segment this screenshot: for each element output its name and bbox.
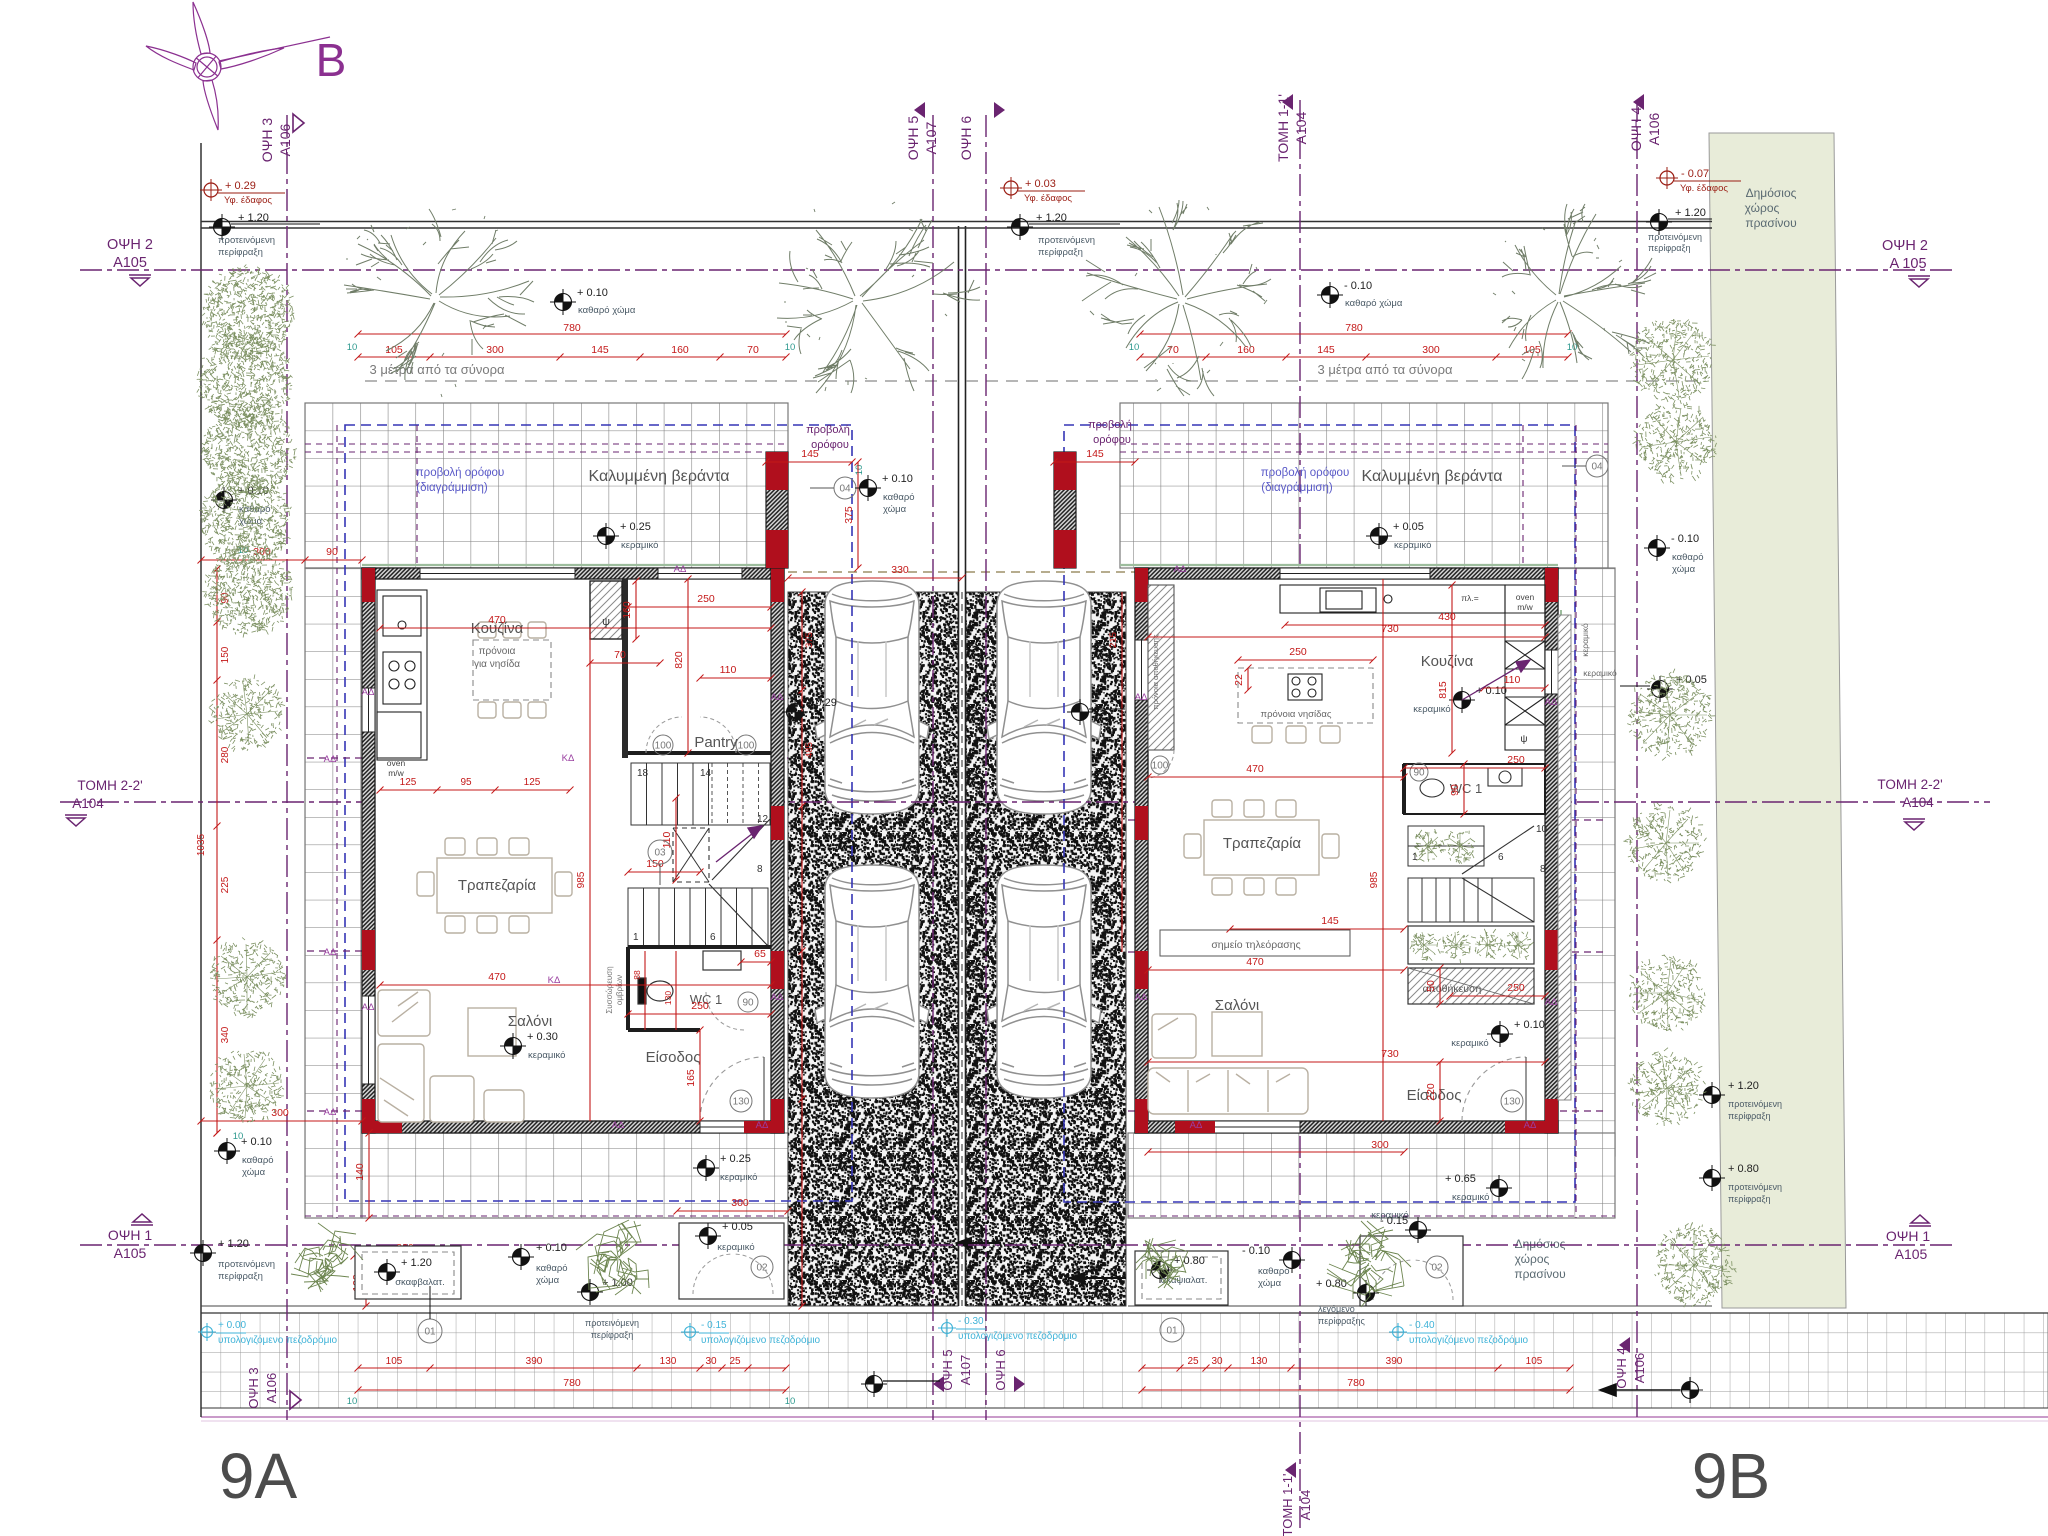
svg-text:προτεινόμενη: προτεινόμενη (1728, 1099, 1782, 1109)
svg-text:375: 375 (804, 632, 815, 648)
svg-text:10: 10 (1129, 342, 1140, 353)
svg-text:10: 10 (347, 342, 358, 353)
svg-text:ομβρίων: ομβρίων (615, 975, 624, 1005)
svg-text:100: 100 (738, 741, 755, 752)
svg-text:(διαγράμμιση): (διαγράμμιση) (416, 482, 488, 494)
svg-text:A104: A104 (1902, 795, 1934, 810)
svg-text:A104: A104 (1293, 111, 1309, 144)
svg-text:+ 1.20: + 1.20 (1675, 207, 1706, 219)
svg-text:+ 0.25: + 0.25 (720, 1153, 751, 1165)
svg-text:90: 90 (1413, 768, 1425, 779)
svg-text:+ 0.00: + 0.00 (218, 1320, 247, 1331)
svg-text:145: 145 (1317, 344, 1335, 356)
svg-text:730: 730 (1381, 1048, 1399, 1060)
svg-text:130: 130 (733, 1097, 750, 1108)
svg-text:χώμα: χώμα (242, 1167, 266, 1178)
svg-text:300: 300 (1371, 1139, 1389, 1151)
svg-text:90: 90 (326, 546, 338, 558)
svg-text:470: 470 (1246, 763, 1264, 775)
svg-text:470: 470 (1246, 956, 1264, 968)
svg-text:υπολογιζόμενο πεζοδρόμιο: υπολογιζόμενο πεζοδρόμιο (958, 1330, 1078, 1342)
svg-text:780: 780 (1347, 1377, 1365, 1389)
svg-text:815: 815 (1437, 681, 1449, 699)
svg-text:03: 03 (654, 848, 666, 859)
svg-text:ΟΨΗ 4: ΟΨΗ 4 (1628, 107, 1644, 152)
svg-text:πλ.=: πλ.= (1461, 593, 1478, 603)
svg-text:ΑΔ: ΑΔ (324, 947, 337, 958)
svg-text:1: 1 (1412, 852, 1418, 863)
svg-text:+ 0.30: + 0.30 (527, 1031, 558, 1043)
svg-text:ΤΟΜΗ 2-2': ΤΟΜΗ 2-2' (1877, 777, 1942, 792)
svg-text:215: 215 (1108, 632, 1119, 648)
svg-text:+ 0.05: + 0.05 (722, 1221, 753, 1233)
svg-text:Τραπεζαρία: Τραπεζαρία (458, 877, 537, 894)
svg-text:220: 220 (1425, 1083, 1437, 1101)
svg-text:ΟΨΗ 1: ΟΨΗ 1 (108, 1227, 153, 1243)
svg-text:70: 70 (1167, 344, 1179, 356)
svg-text:- 0.30: - 0.30 (958, 1316, 984, 1327)
svg-text:470: 470 (488, 614, 506, 626)
svg-text:130: 130 (1504, 1097, 1521, 1108)
svg-text:6: 6 (1498, 852, 1504, 863)
svg-text:+ 1.20: + 1.20 (238, 212, 269, 224)
svg-text:730: 730 (1381, 623, 1399, 635)
svg-text:390: 390 (1386, 1356, 1403, 1367)
svg-text:προτεινόμενη: προτεινόμενη (1648, 232, 1702, 242)
svg-text:προτεινόμενη: προτεινόμενη (1038, 235, 1095, 246)
svg-text:340: 340 (220, 1026, 231, 1043)
svg-text:- 0.07: - 0.07 (1681, 168, 1709, 180)
svg-text:780: 780 (1345, 322, 1363, 334)
svg-text:λεγόμενο: λεγόμενο (1318, 1304, 1355, 1314)
svg-text:Καλυμμένη βεράντα: Καλυμμένη βεράντα (1361, 468, 1502, 485)
svg-text:+ 1.20: + 1.20 (1728, 1080, 1759, 1092)
svg-text:προβολή: προβολή (806, 424, 850, 436)
svg-text:6: 6 (710, 932, 716, 943)
svg-text:χώμα: χώμα (536, 1275, 560, 1286)
svg-text:+ 0.29: + 0.29 (225, 180, 256, 192)
svg-text:10: 10 (1536, 824, 1548, 835)
svg-text:+ 0.05: + 0.05 (1676, 674, 1707, 686)
svg-text:820: 820 (673, 651, 685, 669)
svg-text:A105: A105 (1895, 1246, 1928, 1262)
svg-text:375: 375 (843, 506, 855, 524)
svg-text:+ 0.05: + 0.05 (1393, 521, 1424, 533)
svg-text:ΤΟΜΗ 2-2': ΤΟΜΗ 2-2' (77, 778, 142, 793)
svg-text:περίφραξη: περίφραξη (218, 1271, 263, 1282)
svg-text:ΟΨΗ 4: ΟΨΗ 4 (1614, 1347, 1629, 1388)
svg-text:Δημόσιος: Δημόσιος (1746, 186, 1797, 200)
svg-text:Δημόσιος: Δημόσιος (1515, 1237, 1566, 1251)
svg-text:Καλυμμένη βεράντα: Καλυμμένη βεράντα (588, 468, 729, 485)
svg-text:ΑΔ: ΑΔ (362, 687, 375, 698)
svg-text:A106: A106 (264, 1373, 279, 1403)
svg-text:985: 985 (576, 871, 587, 888)
svg-text:3 μέτρα από τα σύνορα: 3 μέτρα από τα σύνορα (370, 362, 505, 377)
svg-text:ψ: ψ (1520, 734, 1527, 745)
svg-text:B: B (316, 34, 347, 86)
svg-text:02: 02 (1431, 1263, 1443, 1274)
svg-text:50: 50 (1425, 980, 1437, 992)
svg-text:+ 0.03: + 0.03 (1025, 178, 1056, 190)
svg-text:Υφ. έδαφος: Υφ. έδαφος (1680, 183, 1728, 194)
svg-text:30: 30 (705, 1356, 717, 1367)
svg-text:κεραμικό: κεραμικό (1583, 668, 1617, 678)
svg-text:Συσσώρευση: Συσσώρευση (605, 966, 614, 1013)
svg-text:1035: 1035 (196, 833, 207, 856)
svg-text:145: 145 (801, 448, 819, 460)
svg-text:145: 145 (591, 344, 609, 356)
svg-text:250: 250 (1289, 646, 1307, 658)
svg-text:300: 300 (486, 344, 504, 356)
svg-text:985: 985 (1369, 871, 1380, 888)
svg-text:κεραμικό: κεραμικό (1452, 1192, 1489, 1203)
svg-text:485: 485 (804, 742, 815, 758)
svg-text:Υφ. έδαφος: Υφ. έδαφος (224, 195, 272, 206)
svg-text:πρασίνου: πρασίνου (1745, 216, 1796, 230)
svg-text:oven: oven (1516, 592, 1535, 602)
svg-text:πρόνοια: πρόνοια (479, 645, 516, 657)
svg-text:- 0.10: - 0.10 (1344, 280, 1372, 292)
svg-text:καθαρό: καθαρό (536, 1263, 568, 1274)
svg-text:κεραμικό: κεραμικό (1580, 623, 1590, 657)
svg-text:1: 1 (633, 932, 639, 943)
svg-text:130: 130 (660, 1356, 677, 1367)
svg-text:+ 1.20: + 1.20 (218, 1238, 249, 1250)
svg-text:ΟΨΗ 2: ΟΨΗ 2 (1882, 238, 1928, 254)
svg-text:ΑΔ: ΑΔ (674, 564, 687, 575)
svg-text:A105: A105 (113, 255, 147, 271)
svg-text:+ 0.10: + 0.10 (882, 473, 913, 485)
svg-text:ΟΨΗ 6: ΟΨΗ 6 (958, 116, 974, 161)
svg-text:110: 110 (1504, 674, 1521, 686)
svg-text:ΤΟΜΗ 1-1': ΤΟΜΗ 1-1' (1280, 1474, 1295, 1536)
svg-text:καθαρό: καθαρό (1258, 1266, 1290, 1277)
svg-text:10: 10 (785, 1396, 796, 1407)
svg-text:χώμα: χώμα (883, 504, 907, 515)
svg-text:250: 250 (697, 593, 715, 605)
svg-text:κεραμικό: κεραμικό (1413, 704, 1450, 715)
svg-text:m/w: m/w (1517, 602, 1533, 612)
svg-text:9B: 9B (1692, 1440, 1770, 1512)
svg-text:8: 8 (1540, 864, 1546, 875)
svg-text:+ 0.10: + 0.10 (241, 1136, 272, 1148)
svg-text:12: 12 (757, 814, 769, 825)
svg-text:ΟΨΗ 6: ΟΨΗ 6 (993, 1349, 1008, 1390)
svg-text:ΚΔ: ΚΔ (562, 753, 575, 764)
svg-text:A105: A105 (114, 1245, 147, 1261)
svg-text:300: 300 (731, 1197, 749, 1209)
svg-text:250: 250 (691, 1000, 709, 1012)
svg-text:+ 0.65: + 0.65 (1445, 1173, 1476, 1185)
svg-text:A107: A107 (923, 121, 939, 154)
svg-text:+ 0.10: + 0.10 (536, 1242, 567, 1254)
svg-text:70: 70 (614, 649, 626, 661)
svg-text:περίφραξη: περίφραξη (591, 1330, 634, 1340)
svg-text:περίφραξης: περίφραξης (1318, 1316, 1366, 1326)
svg-text:+ 0.80: + 0.80 (1728, 1163, 1759, 1175)
svg-text:9A: 9A (219, 1440, 298, 1512)
svg-text:σημείο τηλεόρασης: σημείο τηλεόρασης (1211, 939, 1300, 951)
svg-text:145: 145 (1086, 448, 1104, 460)
svg-text:Είσοδος: Είσοδος (646, 1049, 701, 1066)
svg-text:ΑΔ: ΑΔ (1135, 692, 1148, 703)
svg-text:περίφραξη: περίφραξη (1648, 243, 1691, 253)
svg-text:ΑΔ: ΑΔ (771, 692, 784, 703)
svg-text:καθαρό: καθαρό (242, 1155, 274, 1166)
svg-text:κεραμικό: κεραμικό (621, 540, 658, 551)
svg-text:ΟΨΗ 3: ΟΨΗ 3 (246, 1367, 261, 1408)
svg-text:Σαλόνι: Σαλόνι (508, 1013, 552, 1030)
svg-text:25: 25 (729, 1356, 741, 1367)
svg-text:ΑΔ: ΑΔ (1545, 997, 1558, 1008)
svg-text:ΑΔ: ΑΔ (324, 754, 337, 765)
svg-text:ΑΔ: ΑΔ (1524, 1120, 1537, 1131)
svg-text:ΚΔ: ΚΔ (548, 975, 561, 986)
svg-text:280: 280 (220, 746, 231, 763)
svg-text:+ 0.25: + 0.25 (620, 521, 651, 533)
svg-text:ψ: ψ (602, 616, 610, 628)
svg-text:προτεινόμενη: προτεινόμενη (218, 235, 275, 246)
svg-text:10: 10 (854, 465, 865, 476)
svg-text:για νησίδα: για νησίδα (474, 658, 520, 670)
svg-text:υπολογιζόμενο πεζοδρόμιο: υπολογιζόμενο πεζοδρόμιο (701, 1334, 821, 1346)
svg-text:A107: A107 (958, 1355, 973, 1385)
svg-text:καθαρό χώμα: καθαρό χώμα (1345, 298, 1403, 309)
svg-text:140: 140 (354, 1163, 366, 1181)
svg-text:σκαφβαλατ.: σκαφβαλατ. (395, 1277, 445, 1288)
svg-text:130: 130 (1251, 1356, 1268, 1367)
svg-text:ΟΨΗ 1: ΟΨΗ 1 (1886, 1228, 1931, 1244)
svg-text:Pantry: Pantry (694, 734, 738, 751)
svg-text:πρασίνου: πρασίνου (1514, 1267, 1565, 1281)
svg-text:01: 01 (424, 1327, 436, 1338)
svg-text:145: 145 (1321, 915, 1339, 927)
svg-text:22: 22 (1233, 674, 1245, 686)
svg-text:30: 30 (1211, 1356, 1223, 1367)
svg-text:330: 330 (891, 564, 909, 576)
svg-text:90: 90 (1449, 784, 1461, 796)
svg-text:780: 780 (563, 322, 581, 334)
svg-text:65: 65 (754, 948, 766, 960)
svg-text:περίφραξη: περίφραξη (1728, 1194, 1771, 1204)
svg-text:ΑΔ: ΑΔ (1135, 992, 1148, 1003)
svg-text:Κουζίνα: Κουζίνα (1421, 653, 1474, 670)
svg-text:περίφραξη: περίφραξη (1728, 1111, 1771, 1121)
svg-text:8: 8 (757, 864, 763, 875)
svg-text:υπολογιζόμενο πεζοδρόμιο: υπολογιζόμενο πεζοδρόμιο (218, 1334, 338, 1346)
svg-text:250: 250 (1507, 754, 1525, 766)
svg-text:125: 125 (524, 777, 541, 788)
svg-text:πρόνοια αποθήκευσης: πρόνοια αποθήκευσης (1151, 634, 1160, 710)
svg-text:προτεινόμενη: προτεινόμενη (218, 1259, 275, 1270)
svg-text:A104: A104 (1298, 1490, 1313, 1520)
svg-text:A106: A106 (1646, 112, 1662, 145)
svg-text:3 μέτρα από τα σύνορα: 3 μέτρα από τα σύνορα (1318, 362, 1453, 377)
svg-text:+ 0.29: + 0.29 (806, 697, 837, 709)
svg-text:02: 02 (756, 1263, 768, 1274)
svg-text:A106: A106 (277, 123, 293, 156)
svg-text:225: 225 (220, 876, 231, 893)
svg-text:- 0.40: - 0.40 (1409, 1320, 1435, 1331)
svg-text:88: 88 (632, 970, 642, 980)
svg-text:+ 1.20: + 1.20 (401, 1257, 432, 1269)
svg-text:14: 14 (700, 768, 712, 779)
svg-text:ΑΔ: ΑΔ (324, 1107, 337, 1118)
svg-text:(διαγράμμιση): (διαγράμμιση) (1261, 482, 1333, 494)
svg-text:780: 780 (563, 1377, 581, 1389)
svg-text:ΑΔ: ΑΔ (362, 1002, 375, 1013)
svg-text:70: 70 (747, 344, 759, 356)
svg-text:130: 130 (663, 991, 673, 1005)
svg-text:oven: oven (387, 758, 406, 768)
svg-text:105: 105 (1526, 1356, 1543, 1367)
svg-text:περίφραξη: περίφραξη (1038, 247, 1083, 258)
svg-text:ΑΔ: ΑΔ (1174, 564, 1187, 575)
svg-text:+ 0.10: + 0.10 (1514, 1019, 1545, 1031)
svg-text:110: 110 (720, 664, 737, 676)
svg-text:10: 10 (347, 1396, 358, 1407)
svg-text:κεραμικό: κεραμικό (1371, 1210, 1408, 1221)
svg-text:04: 04 (1591, 462, 1603, 473)
svg-text:10: 10 (1567, 342, 1578, 353)
svg-text:A 105: A 105 (1889, 256, 1926, 272)
svg-text:18: 18 (637, 768, 649, 779)
svg-text:300: 300 (1422, 344, 1440, 356)
svg-text:300: 300 (271, 1107, 289, 1119)
svg-text:04: 04 (839, 484, 851, 495)
svg-text:10: 10 (785, 342, 796, 353)
svg-text:100: 100 (1152, 761, 1169, 772)
svg-text:100: 100 (655, 741, 672, 752)
svg-text:χώρος: χώρος (1515, 1252, 1550, 1266)
svg-text:ΑΔ: ΑΔ (1545, 697, 1558, 708)
svg-text:250: 250 (1507, 982, 1525, 994)
svg-text:ΑΔ: ΑΔ (771, 992, 784, 1003)
svg-text:90: 90 (742, 998, 754, 1009)
svg-text:Σαλόνι: Σαλόνι (1215, 997, 1259, 1014)
svg-text:περίφραξη: περίφραξη (218, 247, 263, 258)
svg-text:ΑΔ: ΑΔ (756, 1120, 769, 1131)
svg-text:150: 150 (220, 646, 231, 663)
svg-text:κεραμικό: κεραμικό (720, 1172, 757, 1183)
svg-text:ΑΔ: ΑΔ (1190, 1120, 1203, 1131)
svg-text:ΟΨΗ 5: ΟΨΗ 5 (905, 116, 921, 161)
svg-text:καθαρό: καθαρό (1672, 552, 1704, 563)
svg-text:95: 95 (460, 777, 472, 788)
svg-text:Τραπεζαρία: Τραπεζαρία (1223, 835, 1302, 852)
svg-text:105: 105 (386, 1356, 403, 1367)
svg-text:προβολή ορόφου: προβολή ορόφου (1261, 467, 1349, 479)
svg-text:ΑΔ: ΑΔ (612, 1120, 625, 1131)
svg-text:ΟΨΗ 2: ΟΨΗ 2 (107, 237, 153, 253)
svg-text:165: 165 (685, 1069, 697, 1087)
svg-text:κεραμικό: κεραμικό (1451, 1038, 1488, 1049)
svg-text:υπολογιζόμενο πεζοδρόμιο: υπολογιζόμενο πεζοδρόμιο (1409, 1334, 1529, 1346)
svg-text:A104: A104 (72, 796, 104, 811)
svg-text:430: 430 (1438, 611, 1456, 623)
svg-text:καθαρό: καθαρό (883, 492, 915, 503)
svg-text:- 0.10: - 0.10 (1671, 533, 1699, 545)
svg-text:470: 470 (488, 971, 506, 983)
svg-text:A106: A106 (1632, 1353, 1647, 1383)
svg-text:25: 25 (1187, 1356, 1199, 1367)
svg-text:προβολή ορόφου: προβολή ορόφου (416, 467, 504, 479)
svg-text:+ 0.10: + 0.10 (577, 287, 608, 299)
svg-text:390: 390 (526, 1356, 543, 1367)
svg-text:ορόφου: ορόφου (1093, 434, 1131, 446)
svg-text:χώρος: χώρος (1745, 201, 1780, 215)
svg-text:+ 1.20: + 1.20 (1036, 212, 1067, 224)
svg-text:κεραμικό: κεραμικό (528, 1050, 565, 1061)
svg-text:160: 160 (621, 601, 633, 619)
svg-text:κεραμικό: κεραμικό (1394, 540, 1431, 551)
svg-text:125: 125 (400, 777, 417, 788)
svg-text:ΟΨΗ 3: ΟΨΗ 3 (259, 118, 275, 163)
svg-text:χώμα: χώμα (1672, 564, 1696, 575)
svg-text:προτεινόμενη: προτεινόμενη (1728, 1182, 1782, 1192)
svg-text:160: 160 (1237, 344, 1255, 356)
svg-text:160: 160 (671, 344, 689, 356)
svg-text:χώμα: χώμα (1258, 1278, 1282, 1289)
svg-text:Υφ. έδαφος: Υφ. έδαφος (1024, 193, 1072, 204)
svg-text:- 0.15: - 0.15 (701, 1320, 727, 1331)
svg-text:κεραμικό: κεραμικό (717, 1242, 754, 1253)
svg-text:01: 01 (1166, 1326, 1178, 1337)
svg-text:προτεινόμενη: προτεινόμενη (585, 1318, 639, 1328)
svg-text:- 0.10: - 0.10 (1242, 1245, 1270, 1257)
svg-text:καθαρό χώμα: καθαρό χώμα (578, 305, 636, 316)
svg-text:πρόνοια νησίδας: πρόνοια νησίδας (1261, 709, 1332, 720)
svg-text:προβολή: προβολή (1088, 419, 1132, 431)
